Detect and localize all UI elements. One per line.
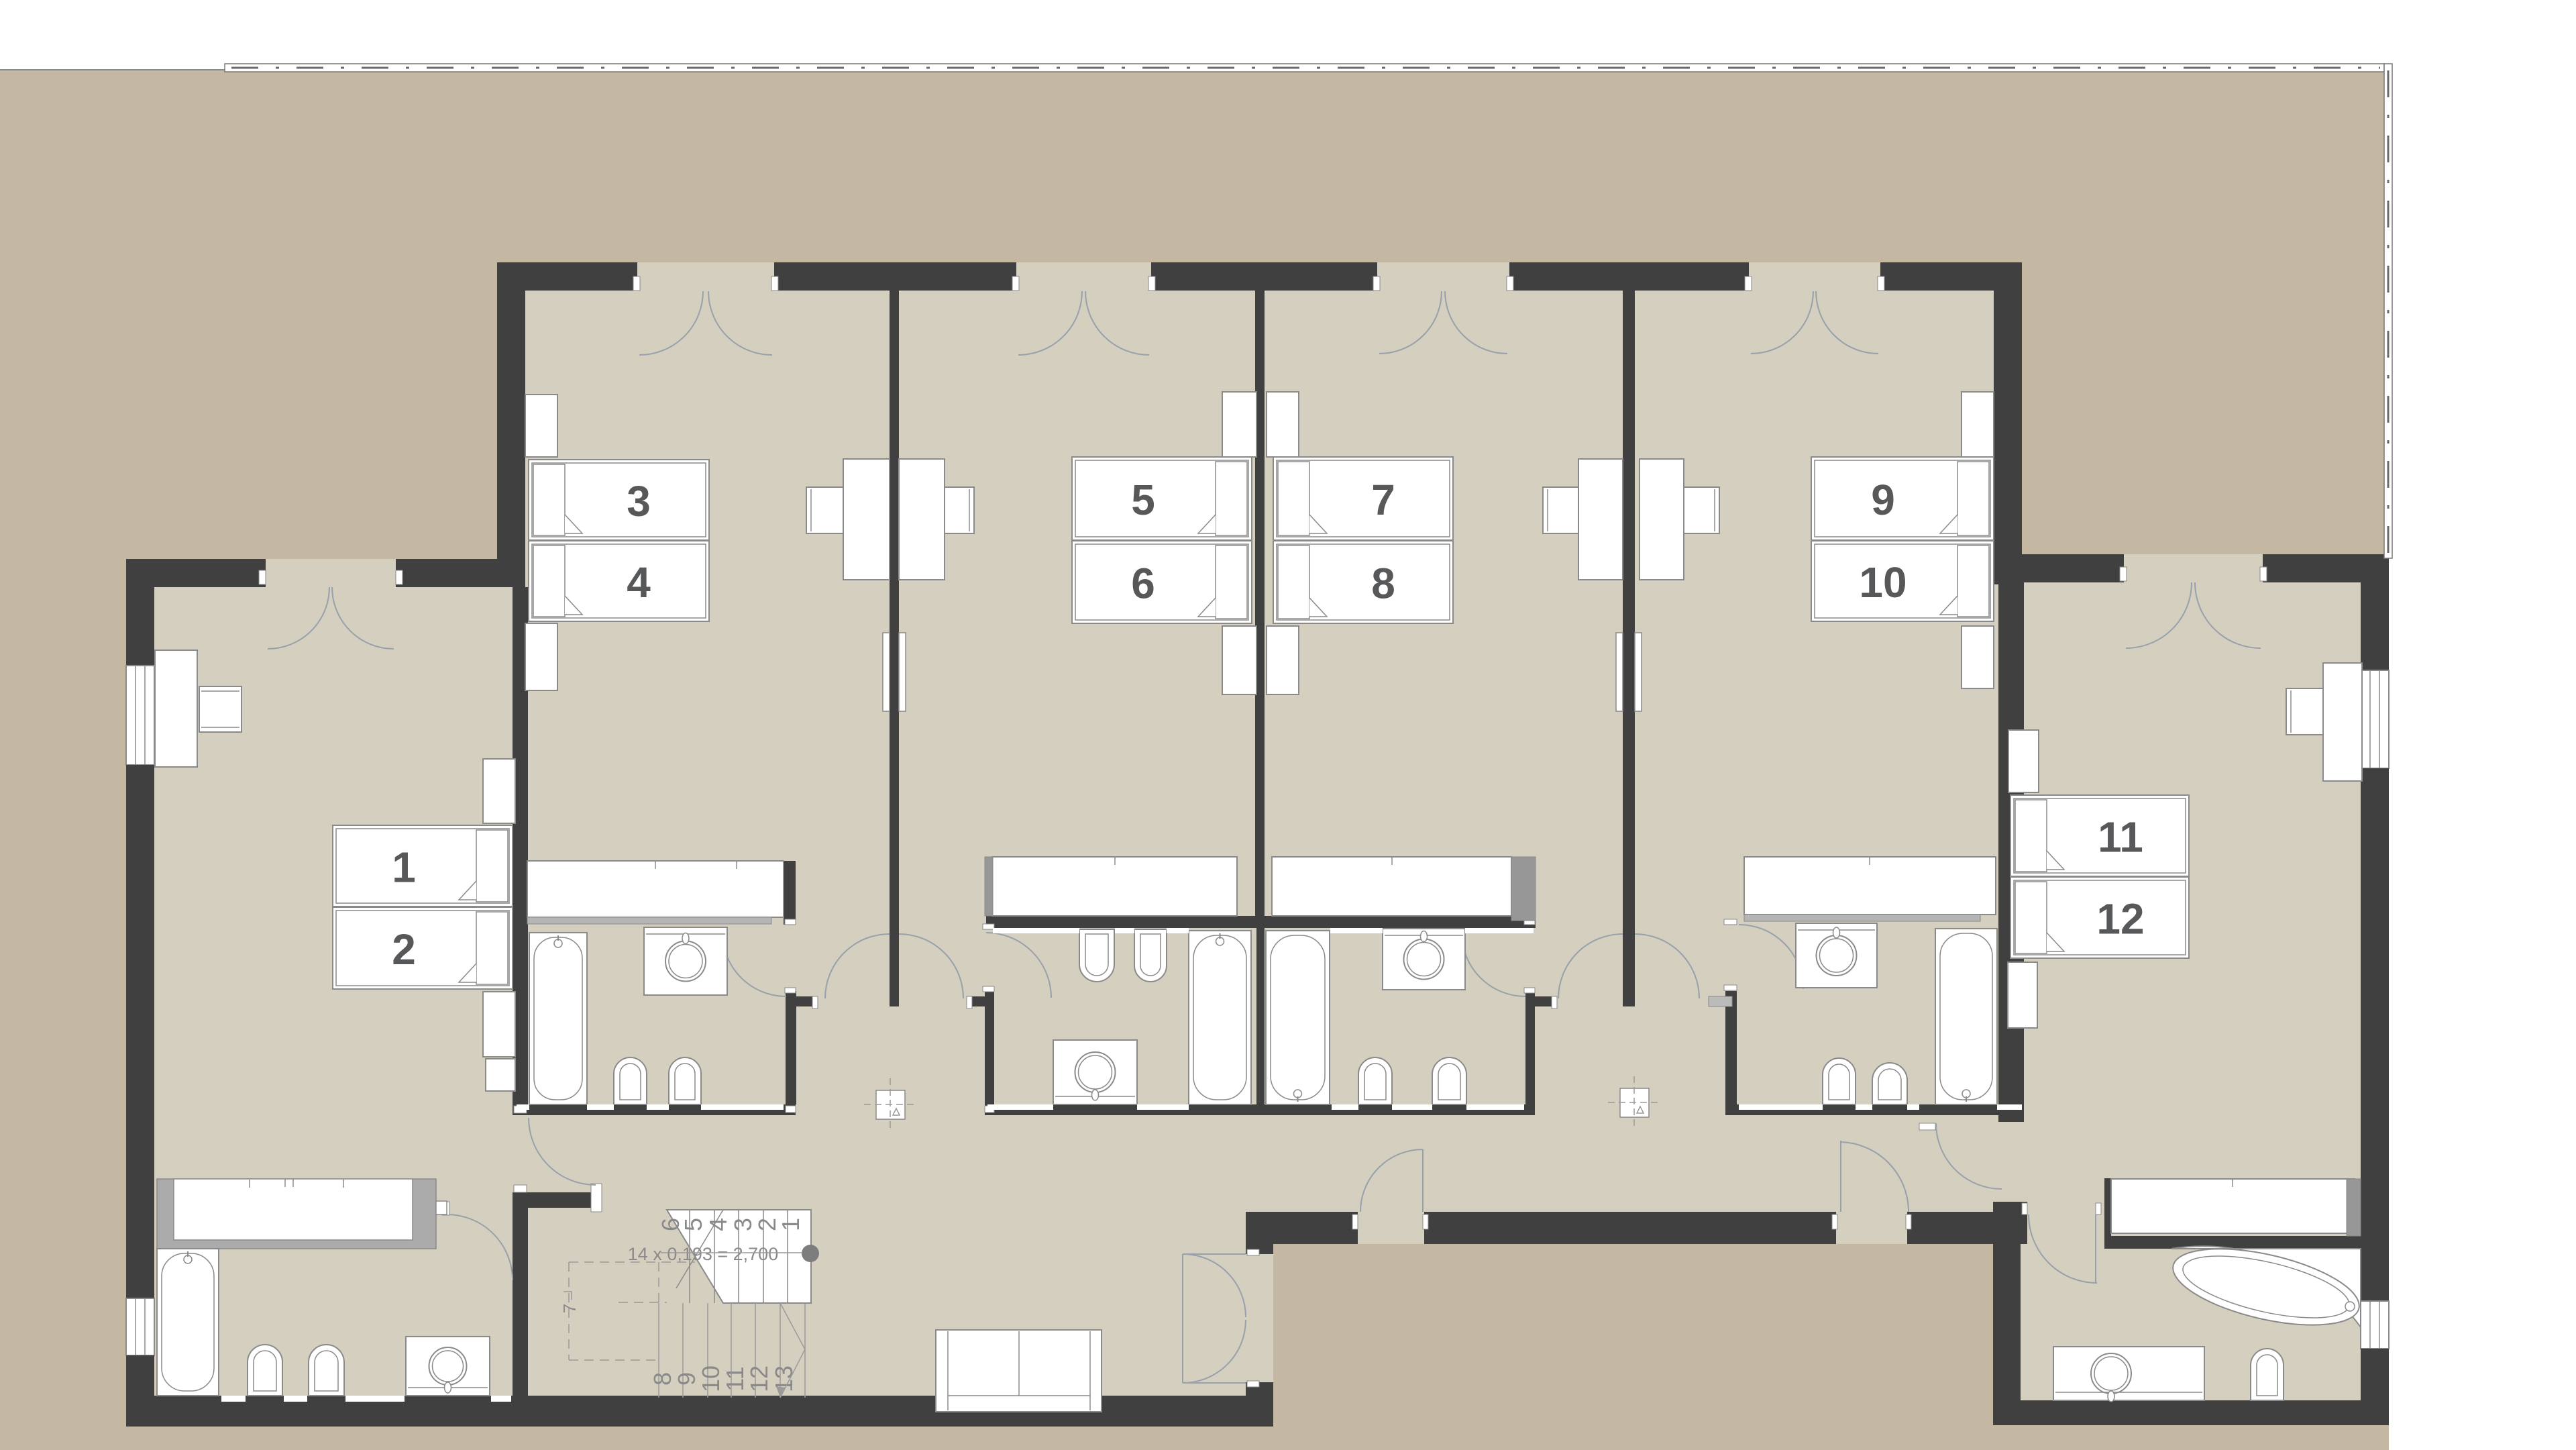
svg-text:7: 7 bbox=[1371, 476, 1395, 524]
svg-text:10: 10 bbox=[697, 1365, 724, 1392]
svg-text:9: 9 bbox=[673, 1372, 700, 1386]
svg-text:5: 5 bbox=[1131, 476, 1155, 524]
svg-text:6: 6 bbox=[657, 1218, 684, 1231]
svg-text:11: 11 bbox=[2098, 813, 2143, 862]
svg-text:11: 11 bbox=[721, 1366, 749, 1391]
svg-text:12: 12 bbox=[2096, 895, 2144, 943]
svg-text:4: 4 bbox=[627, 558, 651, 607]
svg-text:2: 2 bbox=[392, 925, 416, 974]
svg-text:8: 8 bbox=[649, 1372, 676, 1386]
svg-text:6: 6 bbox=[1131, 560, 1155, 608]
svg-text:1: 1 bbox=[777, 1218, 804, 1231]
svg-text:3: 3 bbox=[627, 477, 651, 525]
svg-text:8: 8 bbox=[1371, 560, 1395, 608]
svg-text:10: 10 bbox=[1859, 558, 1907, 607]
svg-text:12: 12 bbox=[745, 1365, 773, 1392]
svg-text:7: 7 bbox=[559, 1304, 580, 1313]
svg-text:4: 4 bbox=[704, 1218, 732, 1231]
svg-text:3: 3 bbox=[729, 1218, 757, 1231]
svg-text:14 x 0,193 = 2,700: 14 x 0,193 = 2,700 bbox=[628, 1244, 778, 1264]
svg-text:9: 9 bbox=[1871, 476, 1895, 524]
svg-text:1: 1 bbox=[392, 843, 416, 892]
svg-text:2: 2 bbox=[753, 1218, 781, 1231]
